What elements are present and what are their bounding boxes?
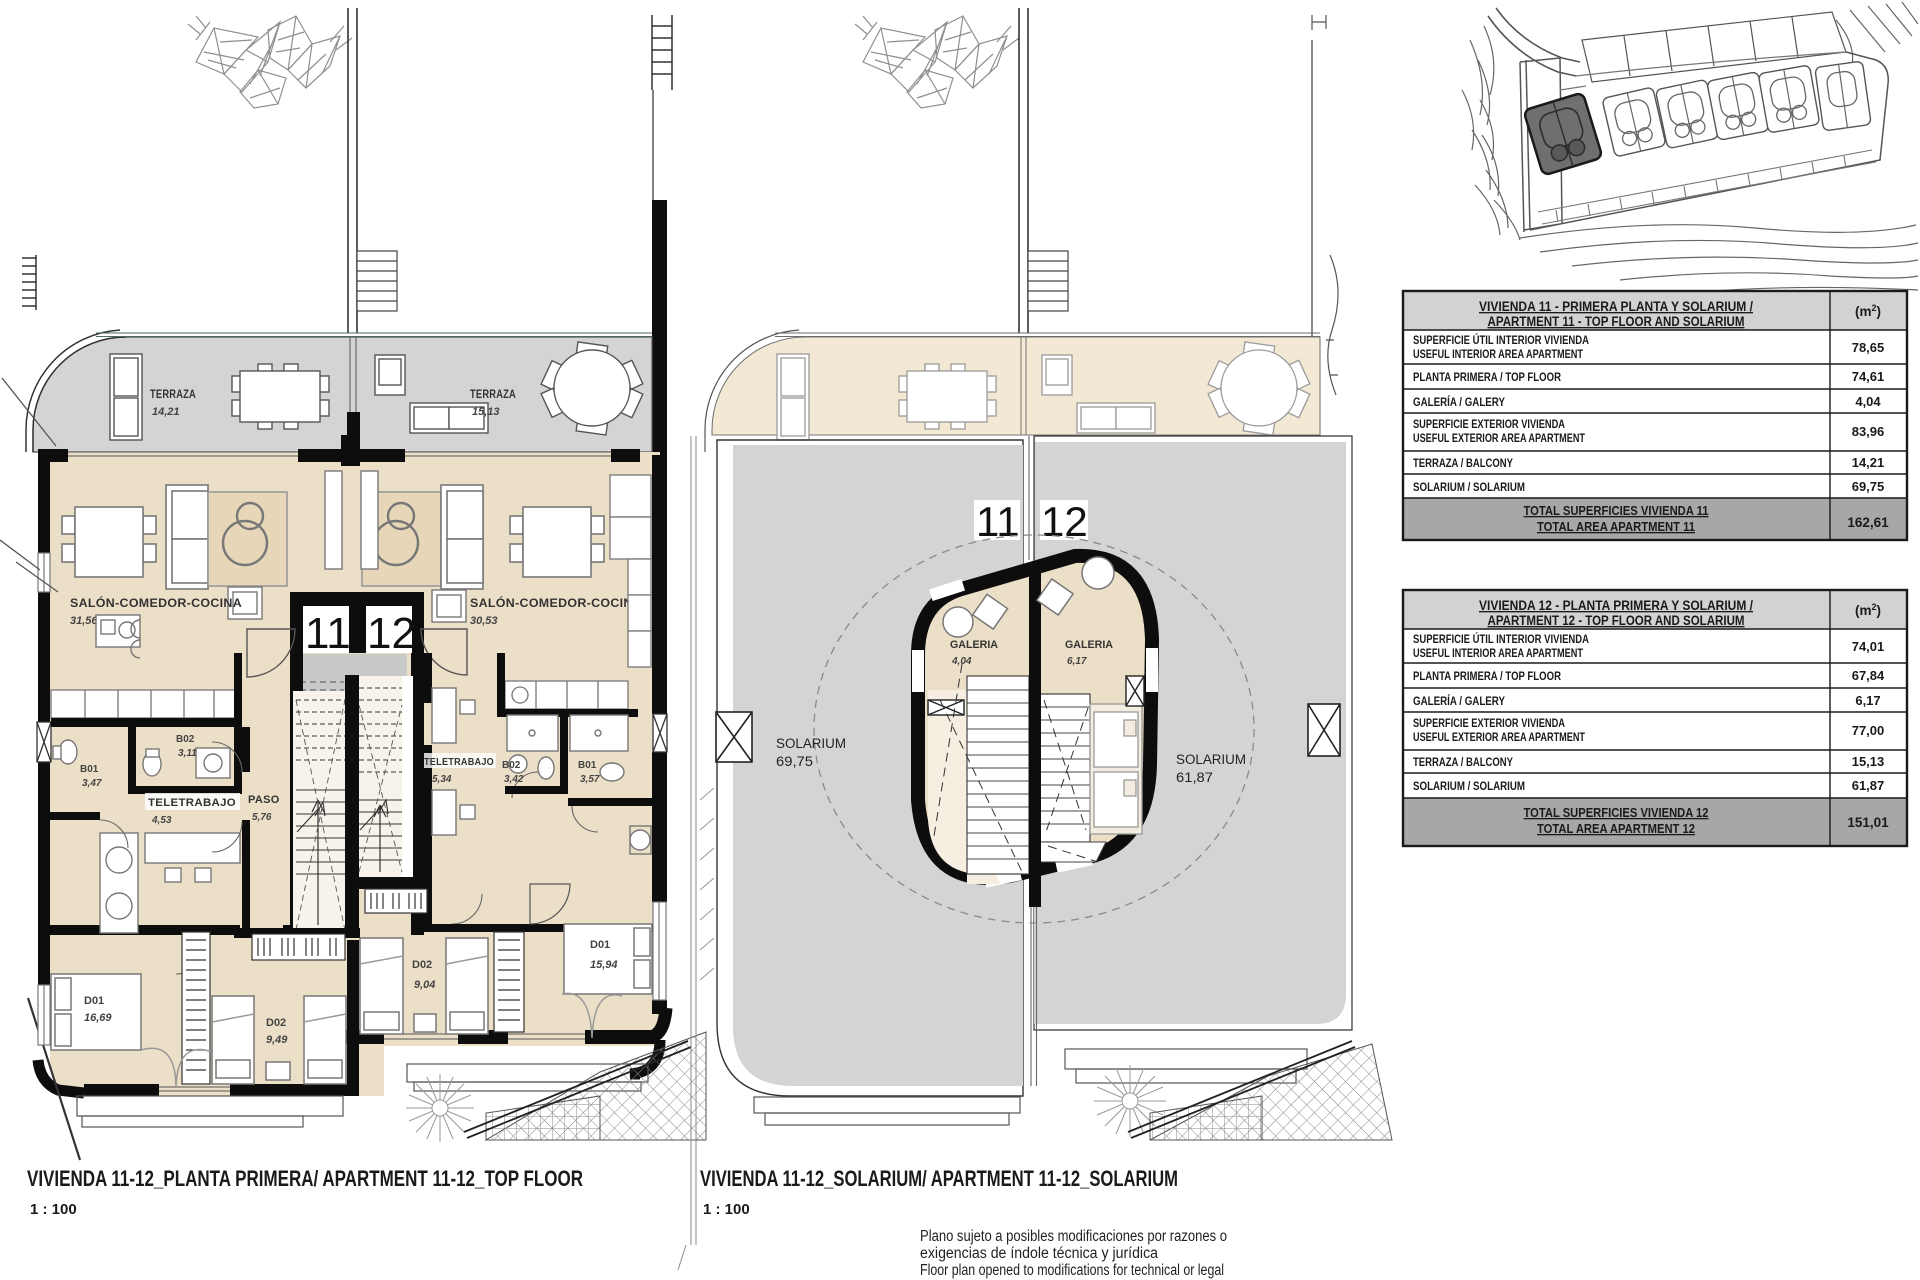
svg-text:78,65: 78,65: [1852, 340, 1885, 355]
svg-text:6,17: 6,17: [1855, 693, 1880, 708]
svg-text:USEFUL EXTERIOR AREA APARTMENT: USEFUL EXTERIOR AREA APARTMENT: [1413, 431, 1586, 445]
svg-text:9,49: 9,49: [266, 1034, 288, 1046]
svg-text:12: 12: [367, 609, 416, 658]
svg-text:67,84: 67,84: [1852, 668, 1885, 683]
svg-text:SUPERFICIE EXTERIOR VIVIENDA: SUPERFICIE EXTERIOR VIVIENDA: [1413, 417, 1565, 431]
svg-text:74,61: 74,61: [1852, 369, 1885, 384]
svg-text:14,21: 14,21: [152, 406, 180, 418]
svg-text:31,56: 31,56: [70, 615, 98, 627]
svg-text:TOTAL SUPERFICIES VIVIENDA 12: TOTAL SUPERFICIES VIVIENDA 12: [1524, 805, 1709, 820]
svg-text:9,04: 9,04: [414, 979, 435, 991]
svg-text:151,01: 151,01: [1847, 815, 1889, 830]
svg-text:TERRAZA: TERRAZA: [470, 387, 516, 401]
svg-text:3,11: 3,11: [178, 748, 197, 759]
svg-text:TERRAZA / BALCONY: TERRAZA / BALCONY: [1413, 456, 1513, 470]
svg-text:B02: B02: [176, 734, 195, 745]
svg-text:GALERIA: GALERIA: [1065, 639, 1113, 651]
svg-text:GALERÍA / GALERY: GALERÍA / GALERY: [1413, 394, 1505, 409]
svg-text:30,53: 30,53: [470, 615, 498, 627]
svg-text:1 : 100: 1 : 100: [703, 1201, 750, 1218]
svg-text:SOLARIUM: SOLARIUM: [1176, 752, 1246, 767]
svg-text:83,96: 83,96: [1852, 424, 1885, 439]
svg-text:6,17: 6,17: [1067, 656, 1087, 667]
svg-text:USEFUL INTERIOR AREA APARTMENT: USEFUL INTERIOR AREA APARTMENT: [1413, 347, 1584, 361]
svg-text:16,69: 16,69: [84, 1012, 112, 1024]
svg-text:61,87: 61,87: [1852, 778, 1885, 793]
svg-text:VIVIENDA 11-12_SOLARIUM/ APART: VIVIENDA 11-12_SOLARIUM/ APARTMENT 11-12…: [700, 1166, 1178, 1191]
svg-text:PLANTA PRIMERA / TOP FLOOR: PLANTA PRIMERA / TOP FLOOR: [1413, 370, 1561, 384]
svg-text:SALÓN-COMEDOR-COCINA: SALÓN-COMEDOR-COCINA: [470, 595, 642, 610]
svg-text:3,47: 3,47: [82, 778, 102, 789]
svg-text:11: 11: [305, 609, 351, 658]
svg-text:3,57: 3,57: [580, 774, 600, 785]
svg-text:TELETRABAJO: TELETRABAJO: [148, 797, 236, 809]
svg-text:61,87: 61,87: [1176, 770, 1213, 785]
svg-text:15,13: 15,13: [1852, 754, 1885, 769]
svg-text:USEFUL INTERIOR AREA APARTMENT: USEFUL INTERIOR AREA APARTMENT: [1413, 646, 1584, 660]
svg-text:15,94: 15,94: [590, 959, 618, 971]
svg-text:D02: D02: [412, 959, 432, 971]
svg-text:SOLARIUM: SOLARIUM: [776, 736, 846, 751]
svg-text:69,75: 69,75: [1852, 479, 1885, 494]
svg-text:(m2): (m2): [1855, 303, 1881, 319]
svg-text:SALÓN-COMEDOR-COCINA: SALÓN-COMEDOR-COCINA: [70, 595, 242, 610]
svg-text:TERRAZA / BALCONY: TERRAZA / BALCONY: [1413, 755, 1513, 769]
svg-text:B02: B02: [502, 760, 521, 771]
svg-text:GALERÍA / GALERY: GALERÍA / GALERY: [1413, 693, 1505, 708]
svg-text:TERRAZA: TERRAZA: [150, 387, 196, 401]
svg-text:4,53: 4,53: [151, 815, 172, 826]
svg-text:D01: D01: [84, 995, 104, 1007]
svg-text:12: 12: [1041, 498, 1088, 545]
svg-text:VIVIENDA 12 - PLANTA PRIMERA Y: VIVIENDA 12 - PLANTA PRIMERA Y SOLARIUM …: [1479, 598, 1753, 613]
svg-text:Plano sujeto a posibles modifi: Plano sujeto a posibles modificaciones p…: [920, 1228, 1227, 1245]
svg-text:USEFUL EXTERIOR AREA APARTMENT: USEFUL EXTERIOR AREA APARTMENT: [1413, 730, 1586, 744]
svg-text:4,04: 4,04: [1855, 394, 1881, 409]
svg-text:TELETRABAJO: TELETRABAJO: [424, 756, 494, 768]
svg-text:162,61: 162,61: [1847, 515, 1889, 530]
svg-text:PLANTA PRIMERA / TOP FLOOR: PLANTA PRIMERA / TOP FLOOR: [1413, 669, 1561, 683]
svg-text:B01: B01: [578, 760, 597, 771]
svg-text:SOLARIUM / SOLARIUM: SOLARIUM / SOLARIUM: [1413, 779, 1525, 793]
svg-text:B01: B01: [80, 764, 99, 775]
svg-text:VIVIENDA 11 - PRIMERA PLANTA Y: VIVIENDA 11 - PRIMERA PLANTA Y SOLARIUM …: [1479, 299, 1753, 314]
svg-text:D01: D01: [590, 939, 610, 951]
svg-text:77,00: 77,00: [1852, 723, 1885, 738]
svg-text:TOTAL SUPERFICIES VIVIENDA 11: TOTAL SUPERFICIES VIVIENDA 11: [1524, 503, 1709, 518]
svg-text:(m2): (m2): [1855, 602, 1881, 618]
svg-text:SUPERFICIE ÚTIL INTERIOR VIVIE: SUPERFICIE ÚTIL INTERIOR VIVIENDA: [1413, 332, 1589, 347]
svg-text:SUPERFICIE EXTERIOR VIVIENDA: SUPERFICIE EXTERIOR VIVIENDA: [1413, 716, 1565, 730]
svg-text:SOLARIUM / SOLARIUM: SOLARIUM / SOLARIUM: [1413, 480, 1525, 494]
svg-text:VIVIENDA 11-12_PLANTA PRIMERA/: VIVIENDA 11-12_PLANTA PRIMERA/ APARTMENT…: [27, 1166, 583, 1191]
svg-text:TOTAL AREA APARTMENT 11: TOTAL AREA APARTMENT 11: [1537, 519, 1695, 534]
svg-text:Floor plan opened to modificat: Floor plan opened to modifications for t…: [920, 1262, 1224, 1279]
svg-text:5,76: 5,76: [252, 812, 272, 823]
svg-text:15,13: 15,13: [472, 406, 500, 418]
svg-text:APARTMENT 12 - TOP FLOOR AND S: APARTMENT 12 - TOP FLOOR AND SOLARIUM: [1488, 613, 1745, 628]
svg-text:exigencias de índole técnica y: exigencias de índole técnica y jurídica: [920, 1245, 1158, 1262]
svg-text:PASO: PASO: [248, 794, 280, 806]
svg-text:5,34: 5,34: [432, 774, 452, 785]
svg-text:14,21: 14,21: [1852, 455, 1885, 470]
svg-text:APARTMENT 11 - TOP FLOOR AND S: APARTMENT 11 - TOP FLOOR AND SOLARIUM: [1488, 314, 1745, 329]
svg-text:D02: D02: [266, 1017, 286, 1029]
svg-text:SUPERFICIE ÚTIL INTERIOR VIVIE: SUPERFICIE ÚTIL INTERIOR VIVIENDA: [1413, 631, 1589, 646]
svg-text:GALERIA: GALERIA: [950, 639, 998, 651]
svg-text:69,75: 69,75: [776, 754, 813, 769]
svg-text:TOTAL AREA APARTMENT 12: TOTAL AREA APARTMENT 12: [1537, 821, 1695, 836]
svg-text:74,01: 74,01: [1852, 639, 1885, 654]
svg-text:3,42: 3,42: [504, 774, 524, 785]
svg-text:1 : 100: 1 : 100: [30, 1201, 77, 1218]
